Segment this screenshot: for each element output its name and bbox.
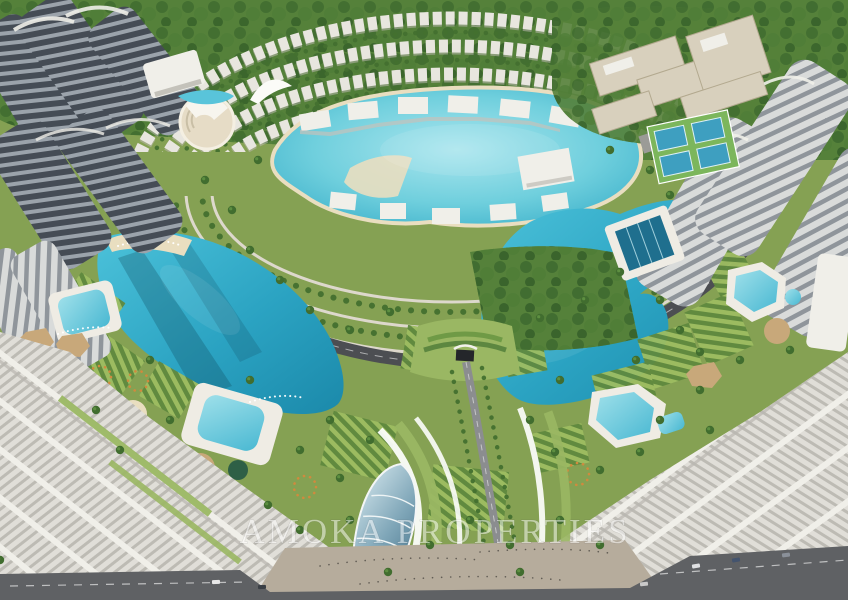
aerial-render-masterplan: AMOKA PROPERTIES bbox=[0, 0, 848, 600]
pond bbox=[228, 460, 248, 480]
tunnel-mouth bbox=[456, 350, 475, 362]
watermark-text: AMOKA PROPERTIES bbox=[239, 512, 630, 551]
scene-canvas: AMOKA PROPERTIES bbox=[0, 0, 848, 600]
round-deck bbox=[764, 318, 790, 344]
